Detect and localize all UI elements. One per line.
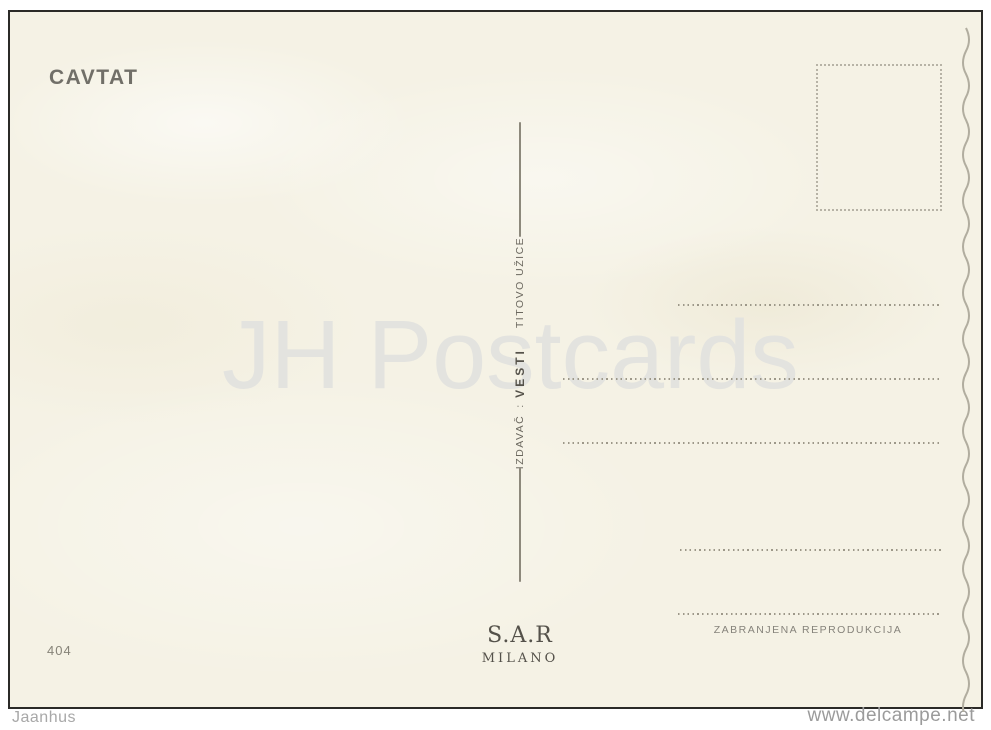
publisher-city: TITOVO UŽICE (514, 237, 526, 328)
publisher-label: IZDAVAČ (514, 415, 526, 469)
address-line-4 (680, 549, 942, 551)
center-divider-top (519, 122, 521, 237)
postcard-title: CAVTAT (49, 66, 138, 90)
address-line-2 (563, 378, 942, 380)
card-number: 404 (47, 643, 72, 658)
address-line-5 (678, 613, 942, 615)
printer-imprint: S.A.R MILANO (450, 624, 590, 666)
postcard-scan: JH Postcards CAVTAT IZDAVAČ : VESTI TITO… (8, 10, 983, 709)
printer-name: S.A.R (450, 624, 590, 648)
reproduction-notice: ZABRANJENA REPRODUKCIJA (708, 624, 908, 636)
seller-watermark: Jaanhus (12, 709, 76, 727)
deckled-edge (955, 24, 977, 712)
screenshot-root: JH Postcards CAVTAT IZDAVAČ : VESTI TITO… (0, 0, 991, 730)
printer-city: MILANO (450, 651, 590, 666)
site-watermark: www.delcampe.net (808, 705, 975, 727)
center-divider-bottom (519, 468, 521, 582)
address-line-3 (563, 442, 942, 444)
publisher-separator: : (514, 405, 526, 408)
address-line-1 (678, 304, 942, 306)
publisher-name: VESTI (513, 348, 527, 398)
watermark-text: JH Postcards (222, 306, 799, 403)
publisher-vertical-text: IZDAVAČ : VESTI TITOVO UŽICE (512, 243, 528, 463)
stamp-box (816, 64, 942, 211)
